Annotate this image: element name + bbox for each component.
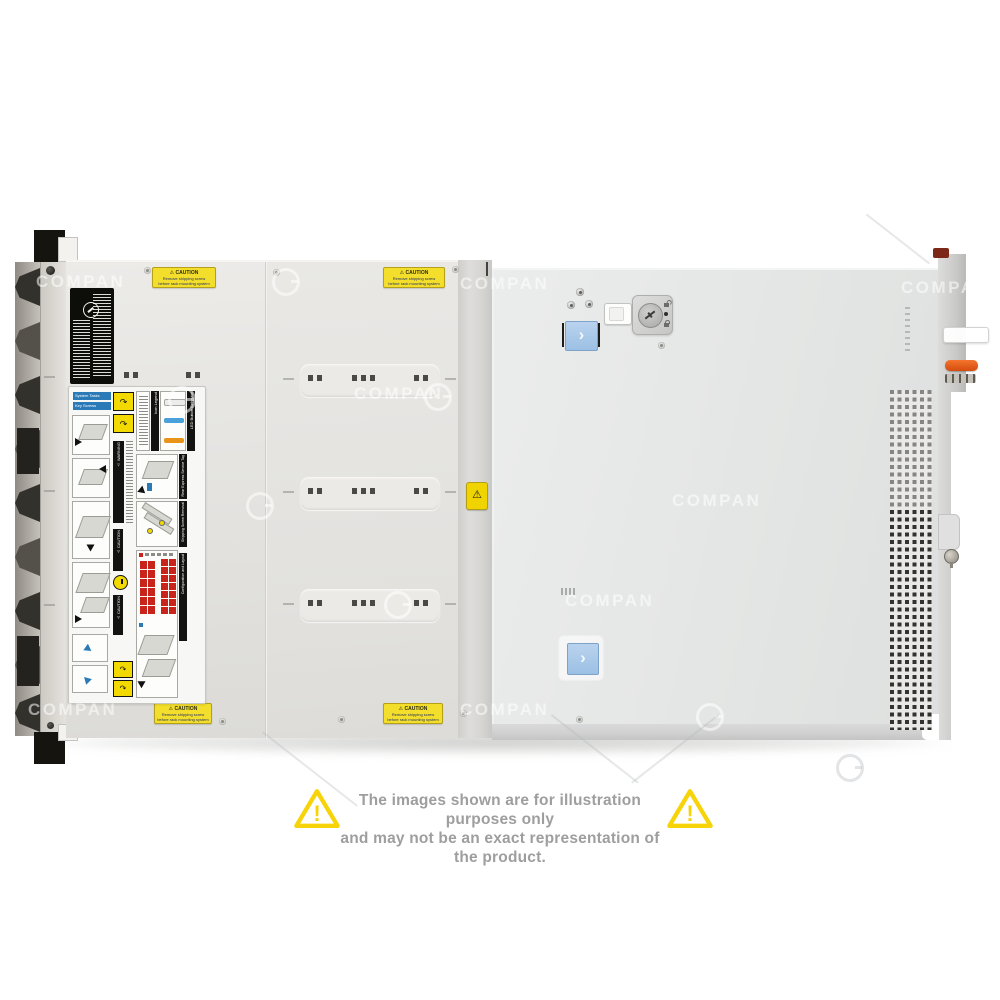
caution-label-bottom-center: ⚠ CAUTION Remove shipping screw before r… [383,703,443,724]
caution-line: before rack mounting system [386,717,440,722]
service-diagram [72,562,110,628]
rivet [658,342,665,349]
watermark-logo-ring [424,383,452,411]
caution-line: before rack mounting system [157,717,209,722]
vent-slots [352,375,376,381]
service-label-header: Key Screws [73,402,111,410]
disclaimer-text: The images shown are for illustration pu… [330,791,670,867]
cover-screw [567,301,575,309]
rack-ear-top-step [58,237,78,262]
cover-recess-row [300,477,440,510]
front-screw [47,722,54,729]
chevron-right-icon: › [579,325,585,344]
five-minute-clock-icon [113,575,128,590]
alignment-mark [283,491,294,493]
watermark-text: COMPAN [28,700,117,720]
front-top-edge-strip [40,257,67,737]
rivet [452,266,459,273]
drive-matrix [140,561,155,614]
shipping-screw-box [136,501,178,547]
cover-keylock [632,295,673,335]
caution-line: before rack mounting system [386,281,442,286]
caution-bar: ⚠ CAUTION [113,595,123,635]
alignment-mark [44,376,55,378]
watermark-text: COMPAN [565,591,654,611]
vent-slots [352,600,376,606]
unlock-icon [664,303,669,307]
vent-slots [124,372,140,378]
vent-slots [186,372,202,378]
keylock-cylinder [638,303,663,328]
drive-matrix [161,559,176,614]
service-diagram [72,501,110,559]
warning-bar: ⚠ WARNING [113,441,124,523]
warning-triangle-icon-right: ! [666,787,714,836]
alignment-mark [445,491,456,493]
svg-text:!: ! [686,801,693,826]
rear-fine-print [905,307,910,351]
rivet [576,716,583,723]
warning-fine-print [126,441,133,523]
service-diagram [72,665,108,693]
cover-release-button-2: › [567,643,599,675]
service-diagram [72,458,110,498]
watermark-logo-ring [246,492,274,520]
icon-legend-box [136,391,150,451]
service-diagram [72,634,108,662]
warning-pictogram: ↷ [113,680,133,697]
svg-text:!: ! [313,801,320,826]
watermark-line [866,214,930,264]
psu-release-lever [945,360,978,371]
bezel-block [17,636,39,686]
service-information-label: System Tasks Key Screws [68,386,206,704]
caution-label-top-right: ⚠ CAUTION Remove shipping screw before r… [383,267,445,288]
bezel-block [17,428,39,474]
caution-label-bottom-left: ⚠ CAUTION Remove shipping screw before r… [154,703,212,724]
watermark-logo-ring [272,268,300,296]
rivet [338,716,345,723]
regulatory-fine-print [93,294,111,378]
watermark-text: COMPAN [901,278,990,298]
regulatory-fine-print [73,320,90,378]
alignment-mark [44,490,55,492]
caution-label-top-left: ⚠ CAUTION Remove shipping screw before r… [152,267,216,288]
cover-screw [576,288,584,296]
configuration-bar: Configuration and Layout [179,553,187,641]
rear-red-nub [933,248,949,258]
rear-tab [938,514,960,550]
disclaimer-line-2: and may not be an exact representation o… [330,829,670,867]
service-diagram [72,415,110,455]
vent-slots [414,488,430,494]
warning-triangle-glyph: ⚠ [472,489,482,501]
alignment-mark [283,603,294,605]
alignment-mark [445,603,456,605]
vent-slots [414,375,430,381]
caution-line: before rack mounting system [155,281,213,286]
vent-slots [308,600,324,606]
alignment-mark [44,604,55,606]
warning-pictogram: ↷ [113,392,134,411]
vent-slots [352,488,376,494]
caution-bar: ⚠ CAUTION [113,529,123,571]
product-photo-scene: ⚠ CAUTION Remove shipping screw before r… [0,0,1000,1000]
vent-slots [414,600,430,606]
watermark-logo-ring [836,754,864,782]
cover-recess-row [300,589,440,622]
button-bracket [562,323,564,347]
rear-edge-cut [951,392,968,740]
disclaimer-line-1: The images shown are for illustration pu… [330,791,670,829]
cover-screw [585,300,593,308]
cover-slide-latch [604,303,632,325]
watermark-logo-ring [168,386,196,414]
vent-slots [308,488,324,494]
rivet [144,267,151,274]
rear-latch-hardware [945,374,976,383]
watermark-text: COMPAN [460,274,549,294]
divider-warning-sticker: ⚠ [466,482,488,510]
vent-slots [308,375,324,381]
rivet [219,718,226,725]
watermark-text: COMPAN [460,700,549,720]
alignment-mark [445,378,456,380]
configuration-box [136,550,178,698]
rear-thumbscrew [944,549,959,564]
warning-pictogram: ↷ [113,414,134,433]
icon-legend-bar: Icon Legend [151,391,159,451]
watermark-text: COMPAN [36,272,125,292]
rear-vent-grille-light [890,390,932,510]
watermark-logo-ring [384,591,412,619]
regulatory-label [70,288,114,384]
watermark-text: COMPAN [672,491,761,511]
psu-handle [943,327,989,343]
lock-position-dot [664,312,668,316]
alignment-mark [283,378,294,380]
cover-release-button: › [565,321,598,351]
service-tag-box [136,454,178,499]
lock-icon [664,323,669,327]
service-label-header: System Tasks [73,392,111,400]
button-bracket [598,323,600,347]
shipping-screw-bar: Shipping Screw Removal [179,501,187,547]
service-tag-bar: Rear Express Service Tag [179,454,187,499]
warning-pictogram: ↷ [113,661,133,678]
chevron-right-icon: › [580,648,586,667]
